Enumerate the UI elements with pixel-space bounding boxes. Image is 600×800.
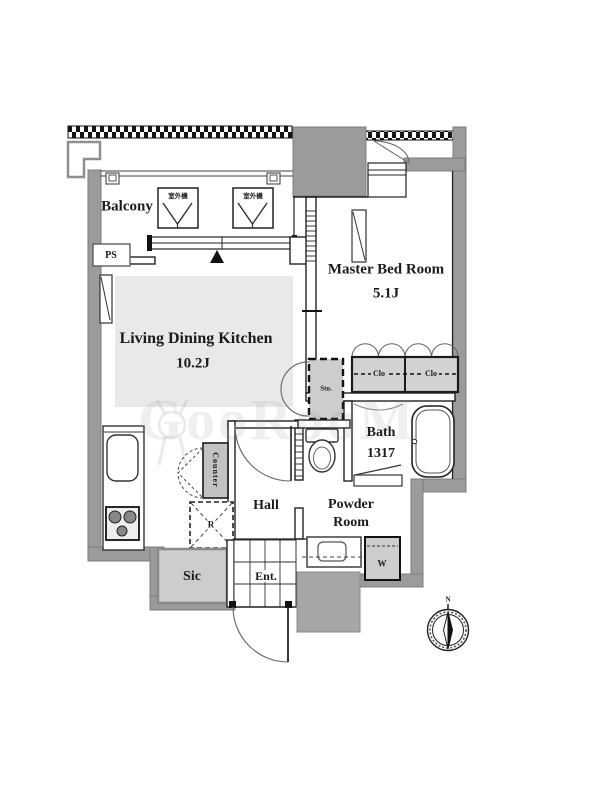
- entry-door: [233, 607, 288, 662]
- mbr-closets: [352, 344, 458, 392]
- storage-label: Sto.: [320, 386, 331, 393]
- mbr-window: [352, 210, 366, 262]
- outside-pillar-block: [297, 572, 360, 632]
- compass-icon: [428, 604, 469, 651]
- closet-left-label: Clo: [371, 370, 387, 378]
- north-marker-triangle: [210, 250, 224, 263]
- refrigerator-label: R: [206, 521, 217, 530]
- closet-right-label: Clo: [423, 370, 439, 378]
- bathtub: [412, 406, 454, 477]
- compass-north-label: N: [445, 597, 450, 604]
- powder-room-label-1: Powder: [328, 498, 374, 512]
- powder-room-label-2: Room: [333, 516, 369, 530]
- bathroom: [344, 401, 454, 486]
- bath-size: 1317: [367, 447, 395, 461]
- ldk-size: 10.2J: [176, 357, 210, 372]
- balcony-railing: [100, 171, 293, 184]
- cabinet-dashed-doors: [178, 448, 203, 498]
- mbr-balcony-door: [368, 141, 409, 197]
- master-bedroom-label: Master Bed Room: [328, 263, 444, 278]
- ac-unit-right-label: 室外機: [243, 194, 263, 201]
- ldk-balcony-window: [147, 235, 297, 263]
- counter-label: Counter: [211, 452, 219, 487]
- kitchen: [103, 426, 233, 550]
- ldk-window: [100, 275, 112, 323]
- washing-machine-label: W: [378, 560, 387, 569]
- hall-label: Hall: [253, 499, 279, 513]
- entrance-label: Ent.: [253, 570, 279, 582]
- ldk-label: Living Dining Kitchen: [120, 331, 273, 347]
- powder-room: [295, 420, 364, 567]
- hall-door-swing: [235, 426, 290, 481]
- shoes-closet-label: Sic: [183, 570, 201, 584]
- kitchen-sink: [107, 435, 138, 481]
- balcony-label: Balcony: [101, 200, 153, 215]
- floor-plan-drawing: [0, 0, 600, 800]
- boundary-hatch-strips: [68, 126, 458, 140]
- pipe-space-label: PS: [105, 251, 117, 261]
- ac-unit-left-label: 室外機: [168, 194, 188, 201]
- bath-label: Bath: [367, 426, 396, 440]
- toilet-bowl: [309, 440, 335, 472]
- floor-plan-page: GooRooM Balcony 室外機 室外機 PS Master Bed Ro…: [0, 0, 600, 800]
- master-bedroom-size: 5.1J: [373, 287, 399, 302]
- bath-door: [354, 475, 402, 486]
- watermark-mascot: [157, 400, 187, 465]
